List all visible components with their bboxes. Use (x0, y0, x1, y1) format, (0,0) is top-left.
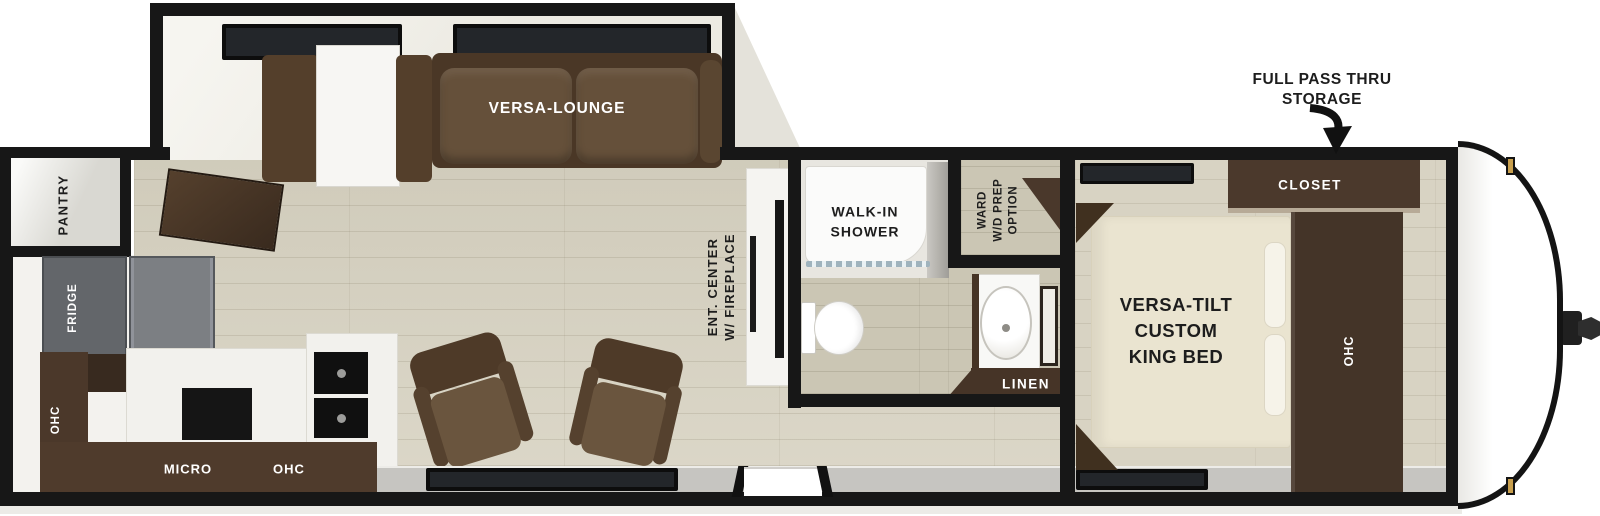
kitchen-corner-cabinet (88, 354, 128, 392)
slideout-side-wedge (735, 8, 800, 148)
storage-callout-arrow-icon (1296, 98, 1360, 160)
marker-light-bottom (1506, 477, 1515, 495)
bedroom-window-top (1080, 163, 1194, 184)
cooktop (182, 388, 252, 440)
fireplace-bar (750, 236, 756, 332)
bed-label: VERSA-TILT CUSTOM KING BED (1120, 292, 1233, 370)
lounge-label: VERSA-LOUNGE (489, 100, 626, 118)
bed-pillow-top (1264, 242, 1286, 328)
shower-label: WALK-IN SHOWER (831, 202, 900, 243)
dinette-bench-left (262, 55, 320, 182)
ward-label-line3: OPTION (1007, 178, 1023, 241)
bed-pillow-bottom (1264, 334, 1286, 416)
ward-bottom-wall (948, 255, 1075, 268)
fridge-body (42, 256, 127, 357)
fridge-label: FRIDGE (67, 283, 79, 332)
drawer-knob-lower (337, 414, 346, 423)
rear-wall (0, 253, 13, 506)
entry-door-opening (744, 467, 822, 496)
hitch-coupler (1578, 317, 1600, 340)
bed-label-line1: VERSA-TILT (1120, 292, 1233, 318)
ohc-kitchen-label: OHC (273, 462, 305, 477)
sink-basin (980, 286, 1032, 360)
front-cap (1458, 141, 1563, 509)
shower-glass-door (806, 261, 930, 267)
ent-center-label-line2: W/ FIREPLACE (722, 233, 739, 341)
tv-bar (775, 200, 784, 358)
linen-label: LINEN (1002, 377, 1050, 392)
drawer-knob-upper (337, 369, 346, 378)
bedroom-window-bottom (1076, 469, 1208, 490)
pantry-label: PANTRY (56, 175, 71, 236)
top-wall-rear-segment (125, 147, 170, 160)
ohc-rear-label: OHC (50, 406, 62, 435)
ent-center-label-line1: ENT. CENTER (705, 233, 722, 341)
shower-right-wall-shade (927, 162, 949, 278)
ground-shadow (0, 506, 1462, 514)
shower-label-line2: SHOWER (831, 222, 900, 242)
marker-light-top (1506, 157, 1515, 175)
bathroom-bottom-wall (788, 394, 1075, 407)
mirror (1040, 286, 1058, 366)
bed-label-line3: KING BED (1120, 344, 1233, 370)
vanity-edge (972, 274, 979, 374)
sink-drain (1002, 324, 1010, 332)
dinette-bench-right (396, 55, 432, 182)
closet-label: CLOSET (1278, 178, 1342, 193)
living-window (426, 468, 678, 491)
micro-label: MICRO (164, 462, 212, 477)
toilet-bowl (814, 301, 864, 355)
fridge-door (129, 256, 215, 357)
bedroom-wall (1060, 147, 1075, 506)
ent-center-label: ENT. CENTER W/ FIREPLACE (705, 233, 739, 341)
ward-label-line1: WARD (976, 178, 992, 241)
bathroom-left-wall (788, 160, 801, 408)
ward-label-line2: W/D PREP (991, 178, 1007, 241)
storage-callout-line1: FULL PASS THRU (1252, 70, 1391, 90)
ward-left-wall (948, 160, 961, 268)
bed-label-line2: CUSTOM (1120, 318, 1233, 344)
dinette-table (316, 45, 400, 187)
ward-label: WARD W/D PREP OPTION (976, 178, 1023, 241)
rv-floorplan-diagram: VERSA-LOUNGE PANTRY FRIDGE OHC MICRO OHC… (0, 0, 1600, 516)
ohc-bedroom-label: OHC (1342, 336, 1356, 367)
sofa-armrest (700, 60, 722, 163)
shower-label-line1: WALK-IN (831, 202, 900, 222)
